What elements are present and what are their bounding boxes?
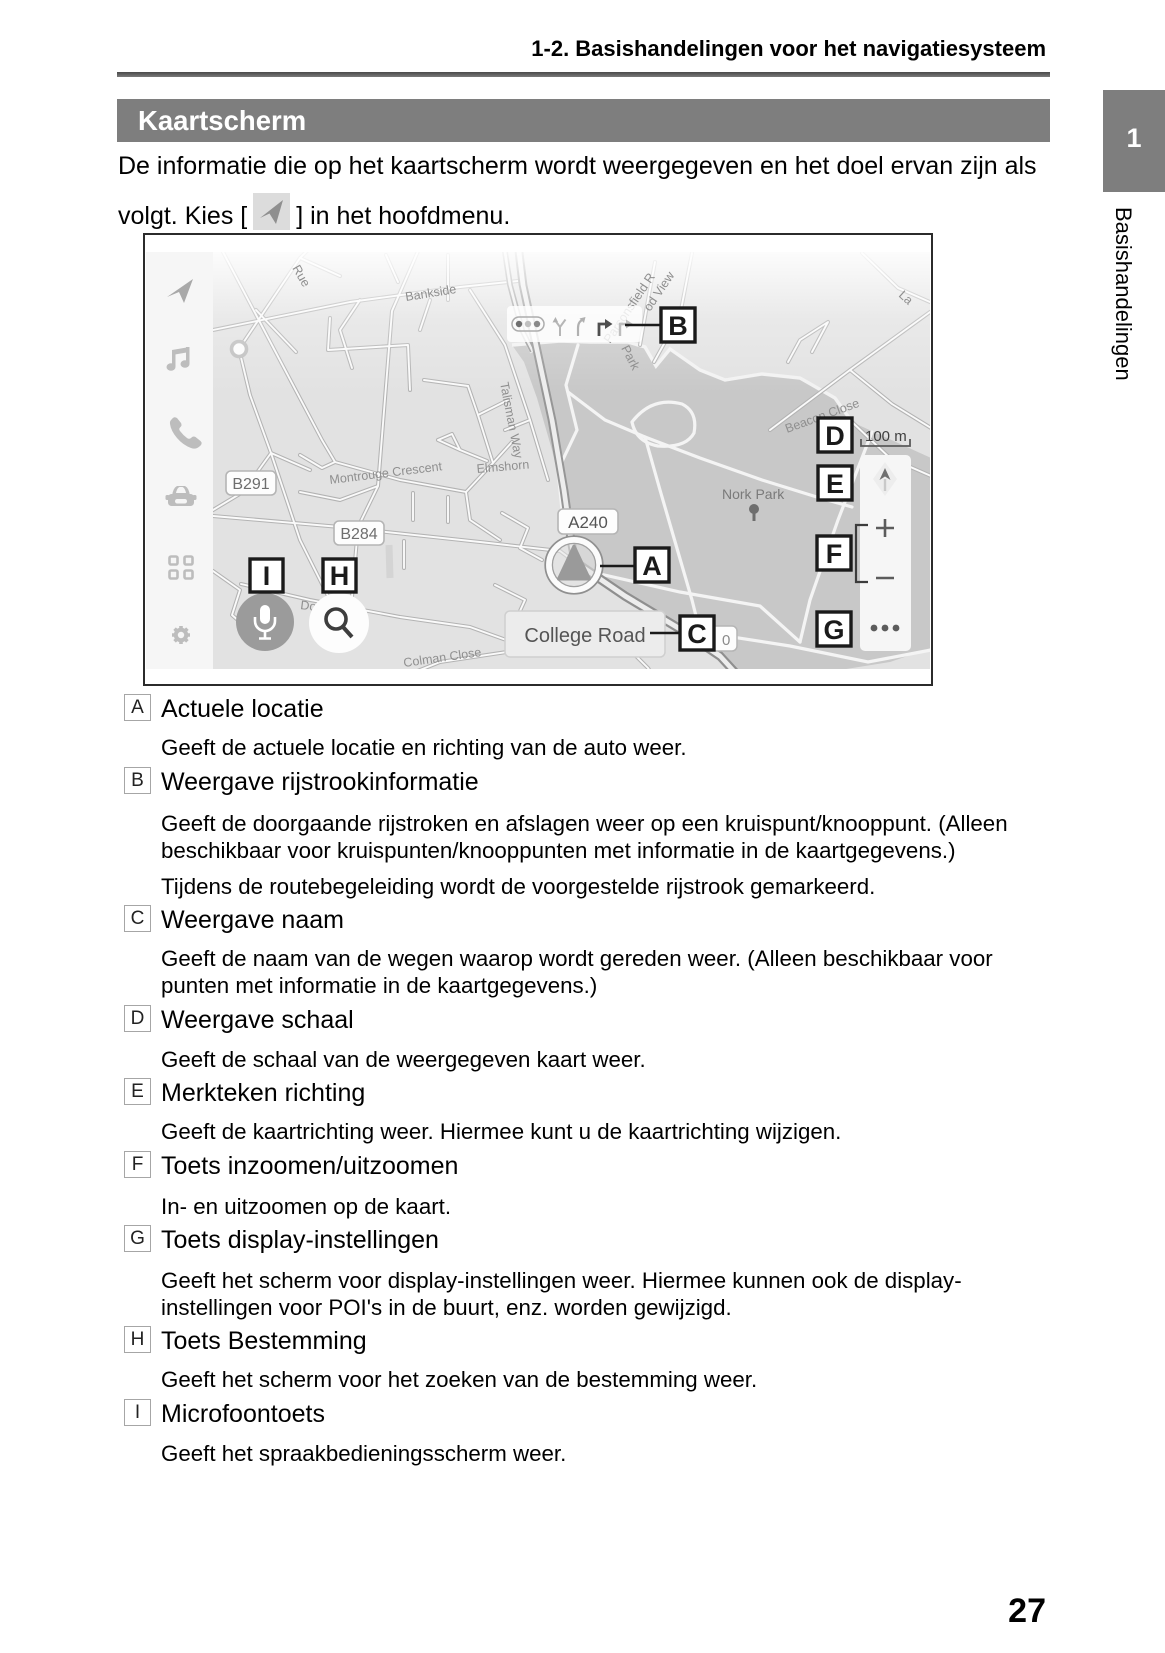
svg-text:Ch: Ch bbox=[548, 668, 569, 684]
svg-text:B284: B284 bbox=[340, 526, 377, 543]
svg-text:Nork Park: Nork Park bbox=[722, 486, 785, 502]
svg-text:G: G bbox=[823, 615, 844, 645]
svg-text:D: D bbox=[825, 421, 845, 451]
svg-text:College Road: College Road bbox=[524, 625, 645, 647]
svg-text:C: C bbox=[687, 619, 707, 649]
svg-text:A: A bbox=[642, 551, 662, 581]
svg-text:B: B bbox=[668, 311, 688, 341]
svg-text:E: E bbox=[826, 469, 844, 499]
svg-text:I: I bbox=[263, 561, 271, 591]
svg-text:0: 0 bbox=[722, 632, 730, 649]
svg-text:H: H bbox=[330, 561, 350, 591]
svg-text:100 m: 100 m bbox=[865, 428, 907, 445]
svg-text:B291: B291 bbox=[232, 476, 269, 493]
svg-text:F: F bbox=[826, 539, 843, 569]
svg-text:A240: A240 bbox=[568, 513, 608, 532]
